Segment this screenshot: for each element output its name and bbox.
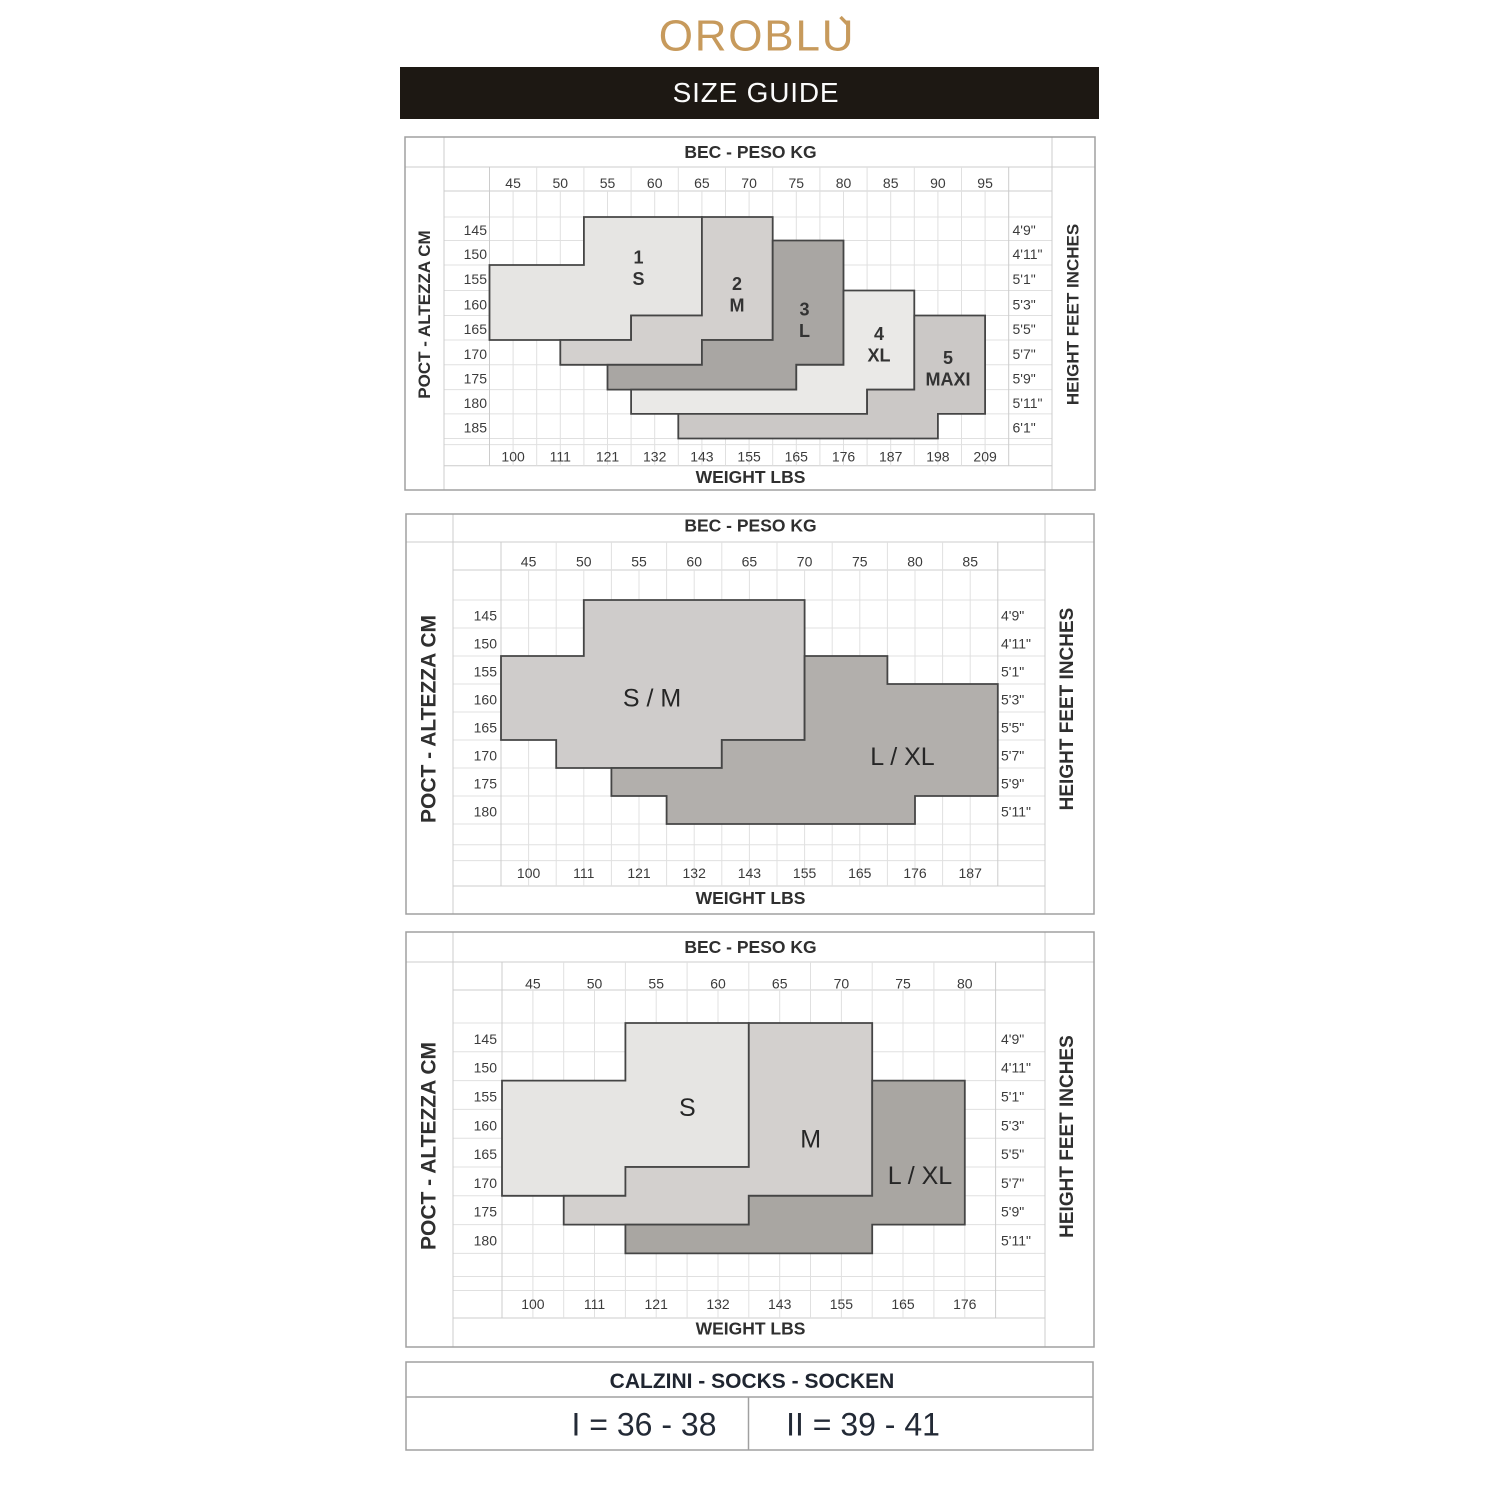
svg-text:80: 80 — [957, 976, 973, 992]
svg-text:55: 55 — [600, 175, 616, 191]
svg-text:POCT - ALTEZZA CM: POCT - ALTEZZA CM — [418, 615, 441, 823]
svg-text:4'9": 4'9" — [1013, 222, 1036, 238]
svg-text:4'11": 4'11" — [1013, 246, 1043, 262]
svg-text:45: 45 — [525, 976, 541, 992]
svg-text:209: 209 — [973, 449, 997, 465]
svg-text:111: 111 — [584, 1296, 605, 1312]
svg-text:80: 80 — [907, 554, 923, 570]
svg-text:176: 176 — [832, 449, 856, 465]
svg-text:5'7": 5'7" — [1001, 1175, 1024, 1191]
svg-text:70: 70 — [834, 976, 850, 992]
svg-text:3: 3 — [799, 300, 809, 320]
svg-text:S / M: S / M — [623, 685, 681, 713]
svg-text:5'11": 5'11" — [1001, 1233, 1031, 1249]
svg-text:70: 70 — [741, 175, 757, 191]
svg-text:5: 5 — [943, 348, 953, 368]
svg-text:100: 100 — [521, 1296, 545, 1312]
svg-text:55: 55 — [648, 976, 664, 992]
svg-text:HEIGHT FEET INCHES: HEIGHT FEET INCHES — [1057, 608, 1078, 811]
svg-text:165: 165 — [848, 865, 872, 881]
svg-text:175: 175 — [464, 371, 488, 387]
svg-text:150: 150 — [464, 246, 488, 262]
svg-text:155: 155 — [793, 865, 817, 881]
svg-text:176: 176 — [953, 1296, 977, 1312]
svg-text:HEIGHT FEET INCHES: HEIGHT FEET INCHES — [1057, 1035, 1078, 1238]
svg-text:II = 39 - 41: II = 39 - 41 — [786, 1407, 940, 1443]
svg-text:HEIGHT FEET INCHES: HEIGHT FEET INCHES — [1064, 224, 1083, 405]
svg-text:L / XL: L / XL — [870, 743, 934, 771]
svg-text:CALZINI - SOCKS - SOCKEN: CALZINI - SOCKS - SOCKEN — [610, 1370, 895, 1393]
svg-text:165: 165 — [464, 321, 488, 337]
svg-text:155: 155 — [474, 664, 498, 680]
svg-text:145: 145 — [474, 608, 498, 624]
svg-text:143: 143 — [768, 1296, 792, 1312]
svg-text:S: S — [632, 269, 644, 289]
svg-text:132: 132 — [683, 865, 707, 881]
svg-text:155: 155 — [464, 271, 488, 287]
svg-text:6'1": 6'1" — [1013, 420, 1036, 436]
svg-text:132: 132 — [706, 1296, 730, 1312]
svg-text:4: 4 — [874, 324, 884, 344]
svg-text:75: 75 — [852, 554, 868, 570]
svg-text:100: 100 — [517, 865, 541, 881]
svg-text:165: 165 — [474, 720, 498, 736]
svg-text:121: 121 — [645, 1296, 669, 1312]
svg-text:160: 160 — [474, 1117, 498, 1133]
svg-text:132: 132 — [643, 449, 667, 465]
svg-text:60: 60 — [647, 175, 663, 191]
svg-text:45: 45 — [505, 175, 521, 191]
svg-text:155: 155 — [474, 1089, 498, 1105]
svg-text:MAXI: MAXI — [926, 370, 971, 390]
svg-text:170: 170 — [474, 1175, 498, 1191]
svg-text:S: S — [679, 1094, 696, 1122]
svg-text:4'11": 4'11" — [1001, 636, 1031, 652]
svg-text:5'3": 5'3" — [1001, 692, 1024, 708]
svg-text:170: 170 — [474, 748, 498, 764]
svg-text:OROBLU: OROBLU — [659, 12, 856, 61]
svg-text:BEC - PESO KG: BEC - PESO KG — [684, 937, 816, 957]
svg-text:WEIGHT LBS: WEIGHT LBS — [696, 467, 806, 487]
svg-text:5'9": 5'9" — [1013, 371, 1036, 387]
svg-text:198: 198 — [926, 449, 950, 465]
svg-text:176: 176 — [903, 865, 927, 881]
svg-text:187: 187 — [959, 865, 983, 881]
svg-text:POCT - ALTEZZA CM: POCT - ALTEZZA CM — [415, 230, 434, 398]
svg-text:5'9": 5'9" — [1001, 1204, 1024, 1220]
svg-text:121: 121 — [627, 865, 651, 881]
svg-text:160: 160 — [464, 297, 488, 313]
svg-text:SIZE GUIDE: SIZE GUIDE — [673, 77, 840, 108]
svg-text:160: 160 — [474, 692, 498, 708]
svg-text:100: 100 — [501, 449, 525, 465]
svg-text:WEIGHT LBS: WEIGHT LBS — [696, 888, 806, 908]
svg-text:75: 75 — [895, 976, 911, 992]
svg-text:WEIGHT LBS: WEIGHT LBS — [696, 1319, 806, 1339]
svg-text:5'11": 5'11" — [1001, 804, 1031, 820]
svg-text:5'5": 5'5" — [1013, 321, 1036, 337]
svg-text:170: 170 — [464, 346, 488, 362]
svg-text:180: 180 — [474, 804, 498, 820]
svg-text:111: 111 — [550, 449, 571, 465]
svg-text:145: 145 — [474, 1031, 498, 1047]
svg-text:M: M — [800, 1125, 821, 1153]
svg-text:4'9": 4'9" — [1001, 1031, 1024, 1047]
svg-text:150: 150 — [474, 636, 498, 652]
svg-text:70: 70 — [797, 554, 813, 570]
svg-text:5'7": 5'7" — [1013, 346, 1036, 362]
svg-text:5'5": 5'5" — [1001, 1146, 1024, 1162]
svg-text:I = 36 - 38: I = 36 - 38 — [572, 1407, 717, 1443]
svg-text:50: 50 — [553, 175, 569, 191]
svg-text:1: 1 — [633, 248, 643, 268]
svg-text:50: 50 — [576, 554, 592, 570]
svg-text:5'3": 5'3" — [1001, 1117, 1024, 1133]
svg-text:143: 143 — [738, 865, 762, 881]
svg-text:M: M — [730, 296, 745, 316]
svg-text:155: 155 — [830, 1296, 854, 1312]
svg-text:POCT - ALTEZZA CM: POCT - ALTEZZA CM — [418, 1042, 441, 1250]
svg-text:60: 60 — [710, 976, 726, 992]
svg-text:175: 175 — [474, 1204, 498, 1220]
svg-text:5'5": 5'5" — [1001, 720, 1024, 736]
svg-text:5'1": 5'1" — [1001, 664, 1024, 680]
svg-text:150: 150 — [474, 1060, 498, 1076]
svg-text:5'1": 5'1" — [1013, 271, 1036, 287]
svg-text:65: 65 — [772, 976, 788, 992]
svg-text:165: 165 — [785, 449, 809, 465]
svg-text:5'7": 5'7" — [1001, 748, 1024, 764]
svg-text:4'9": 4'9" — [1001, 608, 1024, 624]
svg-text:2: 2 — [732, 274, 742, 294]
svg-text:85: 85 — [883, 175, 899, 191]
svg-text:5'3": 5'3" — [1013, 297, 1036, 313]
svg-text:180: 180 — [474, 1233, 498, 1249]
svg-text:143: 143 — [690, 449, 714, 465]
svg-text:145: 145 — [464, 222, 488, 238]
svg-text:155: 155 — [737, 449, 761, 465]
svg-text:85: 85 — [962, 554, 978, 570]
svg-text:L: L — [799, 321, 810, 341]
svg-text:95: 95 — [977, 175, 993, 191]
svg-text:BEC - PESO KG: BEC - PESO KG — [684, 516, 816, 536]
svg-text:165: 165 — [891, 1296, 915, 1312]
svg-text:75: 75 — [789, 175, 805, 191]
svg-text:165: 165 — [474, 1146, 498, 1162]
svg-text:187: 187 — [879, 449, 903, 465]
svg-text:180: 180 — [464, 395, 488, 411]
svg-text:185: 185 — [464, 420, 488, 436]
svg-text:4'11": 4'11" — [1001, 1060, 1031, 1076]
svg-text:BEC - PESO KG: BEC - PESO KG — [684, 142, 816, 162]
svg-text:L / XL: L / XL — [888, 1162, 952, 1190]
svg-text:60: 60 — [686, 554, 702, 570]
svg-text:5'11": 5'11" — [1013, 395, 1043, 411]
svg-text:80: 80 — [836, 175, 852, 191]
svg-text:90: 90 — [930, 175, 946, 191]
svg-text:5'9": 5'9" — [1001, 776, 1024, 792]
svg-text:175: 175 — [474, 776, 498, 792]
svg-text:111: 111 — [573, 865, 594, 881]
svg-text:50: 50 — [587, 976, 603, 992]
svg-text:XL: XL — [867, 346, 890, 366]
svg-text:65: 65 — [694, 175, 710, 191]
svg-text:45: 45 — [521, 554, 537, 570]
svg-text:55: 55 — [631, 554, 647, 570]
svg-text:65: 65 — [742, 554, 758, 570]
svg-text:121: 121 — [596, 449, 620, 465]
svg-text:5'1": 5'1" — [1001, 1089, 1024, 1105]
